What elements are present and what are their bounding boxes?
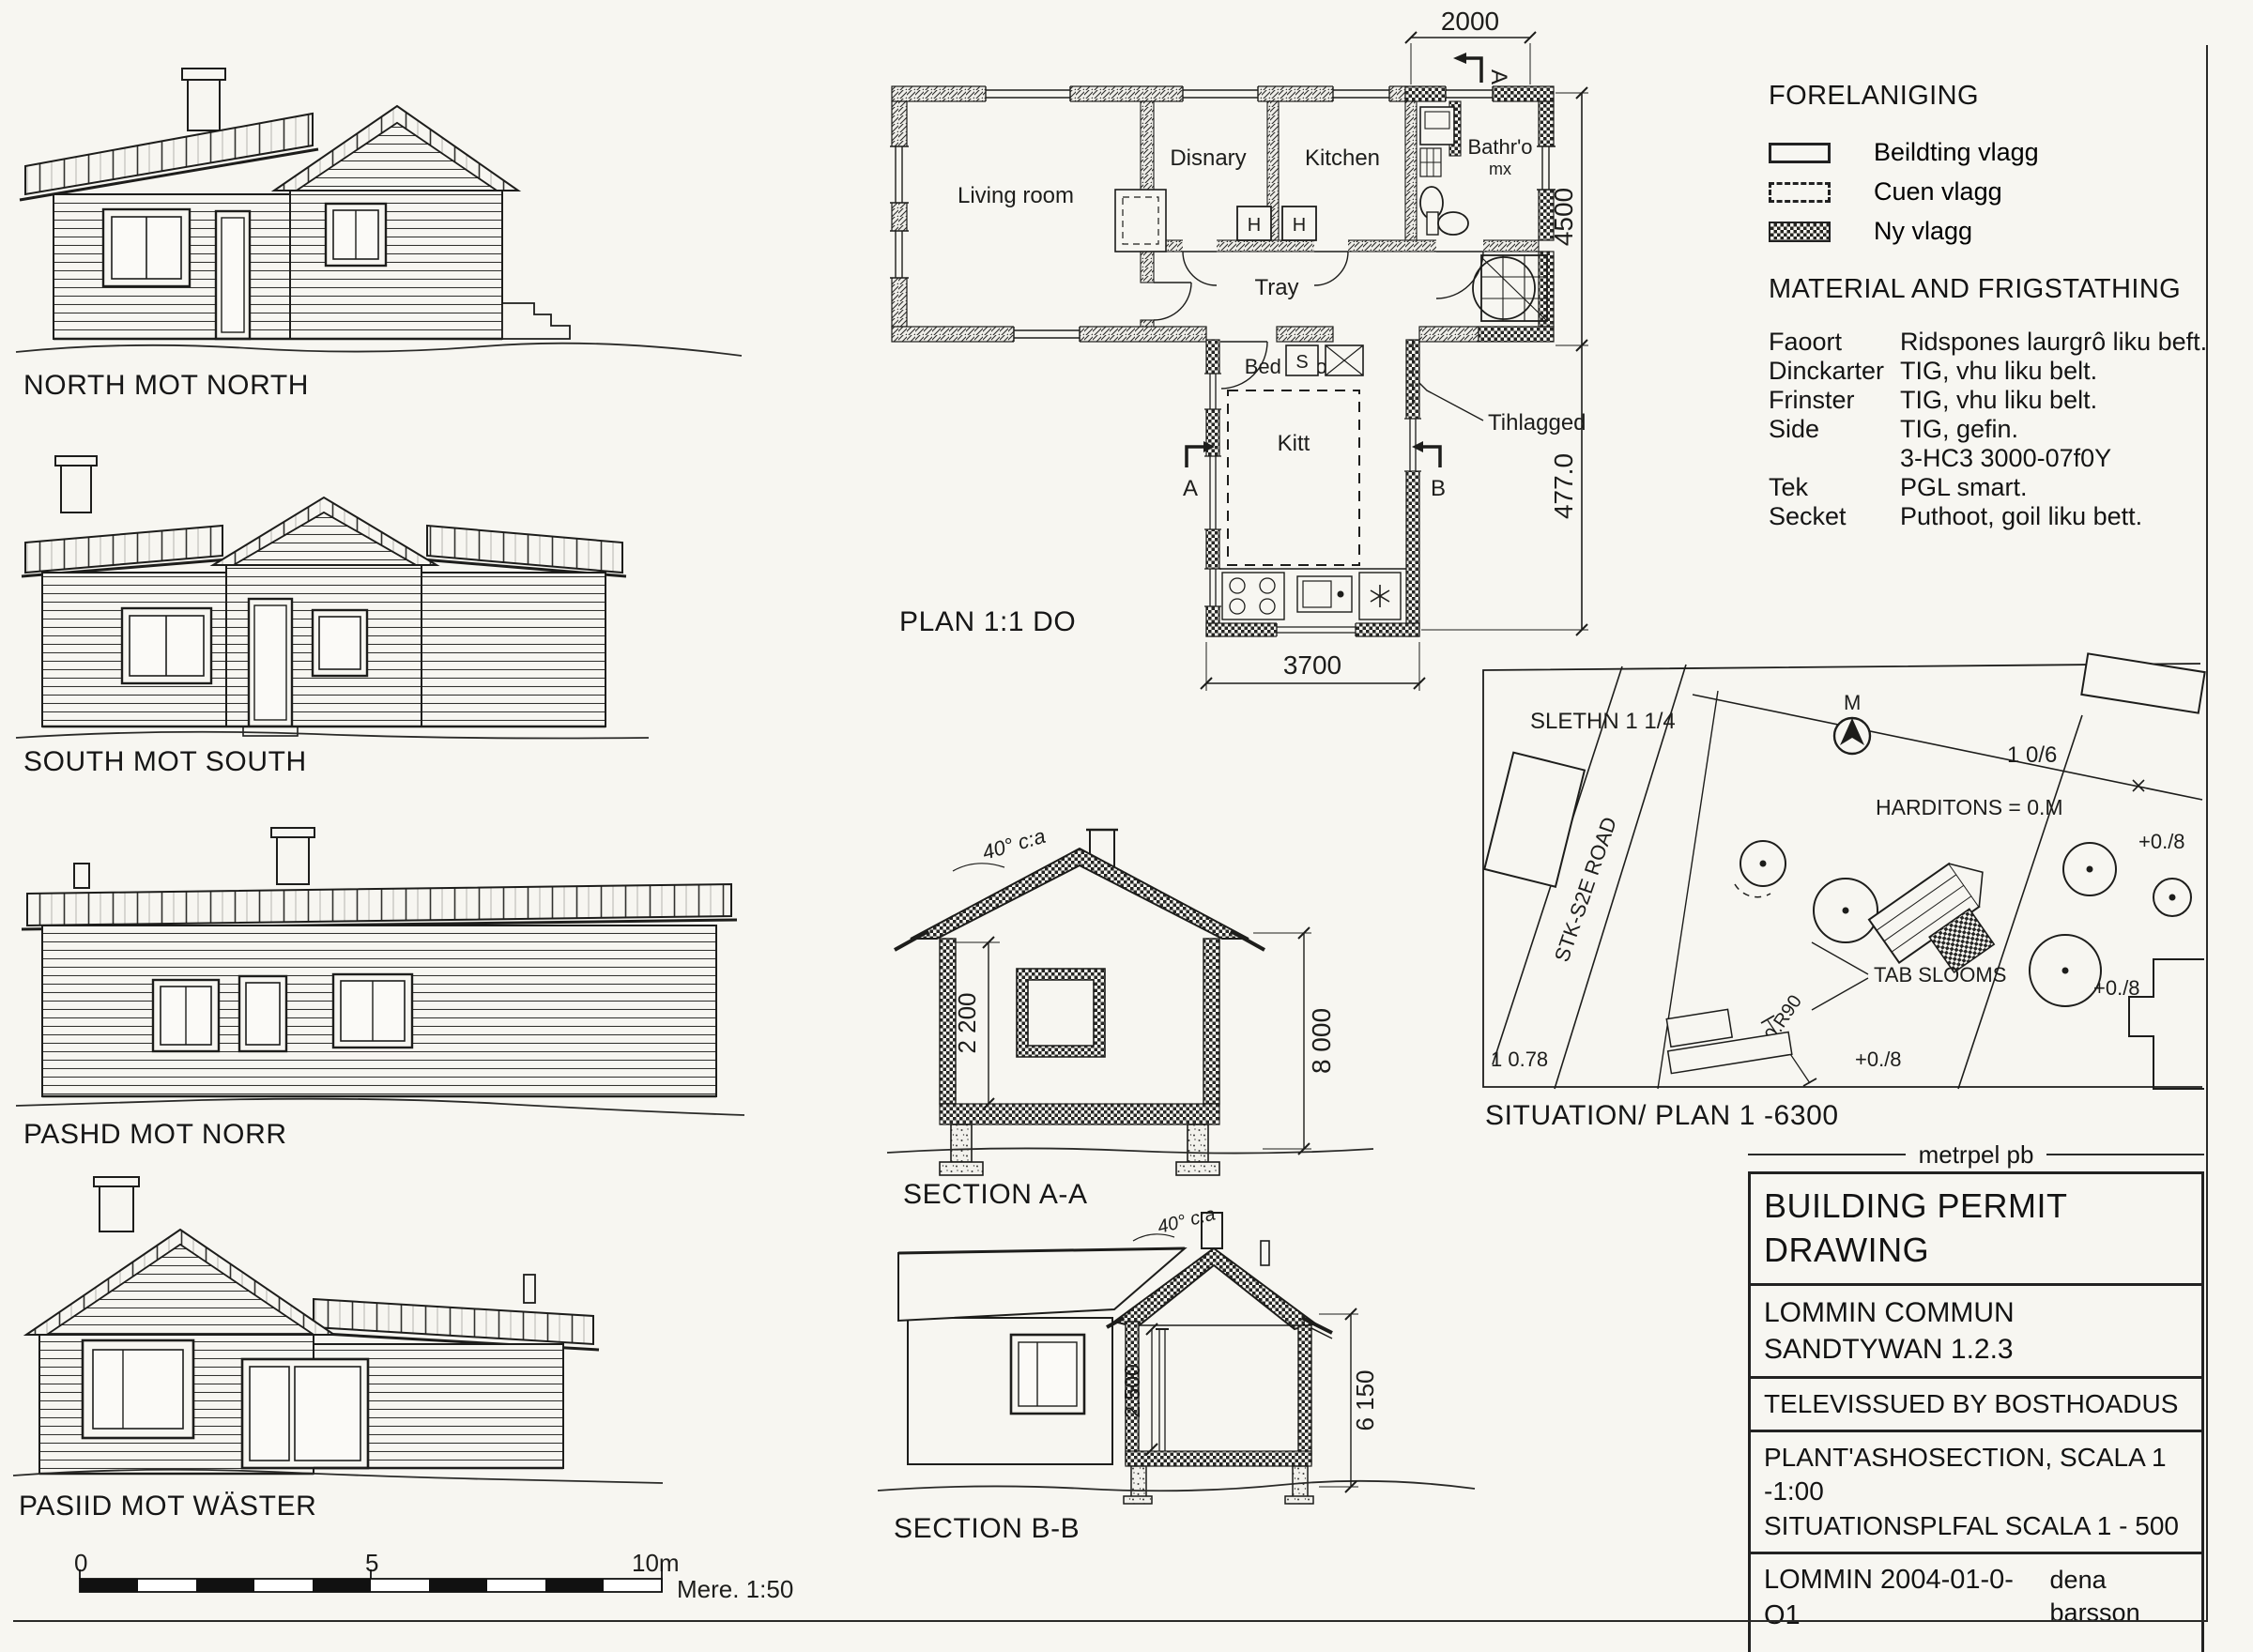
scale-zero: 0 xyxy=(74,1549,87,1577)
harditons-label: HARDITONS = 0.M xyxy=(1876,795,2063,819)
wall-section xyxy=(1203,939,1219,1104)
steps xyxy=(502,303,570,339)
dim-wall-value: 2 200 xyxy=(953,992,981,1053)
room-label-dining: Disnary xyxy=(1170,145,1246,171)
firm-name: metrpel pb xyxy=(1919,1140,2034,1170)
furniture xyxy=(1115,190,1166,252)
room-label-kitchen: Kitchen xyxy=(1305,145,1380,171)
section-aa-drawing: 2 200 8 000 40° c:a xyxy=(887,828,1375,1177)
room-label-kitt: Kitt xyxy=(1278,431,1310,456)
ground-line xyxy=(16,344,742,356)
section-bb-drawing: 2.500 6 150 40° c:a xyxy=(878,1213,1479,1504)
signature-row: LOMMIN 2004-01-0-O1 dena barsson Lena La… xyxy=(1751,1554,2201,1652)
dim-right-lower-value: 477.0 xyxy=(1549,453,1578,519)
window xyxy=(313,610,367,676)
elevation-south-drawing xyxy=(14,451,652,746)
step xyxy=(243,727,298,736)
materials: MATERIAL AND FRIGSTATHING FaoortRidspone… xyxy=(1769,274,2207,531)
floor-slab xyxy=(1126,1451,1311,1466)
material-row: DinckarterTIG, vhu liku belt. xyxy=(1769,357,2207,386)
window xyxy=(239,976,286,1051)
legend: FORELANIGING Beildting vlagg Cuen vlagg … xyxy=(1769,81,2039,256)
roof-wing xyxy=(314,1299,593,1344)
elevation-label-west: PASIID MOT WÄSTER xyxy=(19,1491,316,1522)
dim-total-height: 8 000 xyxy=(1253,927,1336,1155)
dim-top-value: 2000 xyxy=(1441,7,1499,36)
svg-text:H: H xyxy=(1293,215,1306,236)
title-block-box: BUILDING PERMIT DRAWING LOMMIN COMMUN SA… xyxy=(1748,1171,2204,1652)
section-marker-a-top: A xyxy=(1453,53,1511,84)
elevation-west-drawing xyxy=(9,1173,667,1483)
window xyxy=(326,204,386,266)
dim-wall-height: 2 200 xyxy=(953,937,1000,1109)
chimney xyxy=(182,69,225,130)
foundation-piers xyxy=(940,1124,1219,1175)
elevation-label-east: PASHD MOT NORR xyxy=(23,1119,287,1151)
scale-note: Mere. 1:50 xyxy=(677,1575,793,1603)
roof xyxy=(27,884,731,925)
elevation-label-north: NORTH MOT NORTH xyxy=(23,370,309,402)
ground-line xyxy=(16,1099,744,1115)
vent xyxy=(74,864,89,888)
materials-title: MATERIAL AND FRIGSTATHING xyxy=(1769,274,2207,305)
roof-left xyxy=(25,114,313,194)
legend-swatch-dashed-wall xyxy=(1769,182,1831,203)
porch-stair xyxy=(1473,255,1547,321)
firm-name-row: metrpel pb xyxy=(1748,1138,2204,1171)
window xyxy=(153,980,219,1051)
floor-slab xyxy=(940,1104,1219,1124)
elevation-east-drawing xyxy=(14,824,746,1123)
document-number: LOMMIN 2004-01-0-O1 xyxy=(1764,1563,2022,1633)
vent xyxy=(524,1275,535,1303)
legend-label: Cuen vlagg xyxy=(1874,177,2002,206)
scale-row: PLANT'ASHOSECTION, SCALA 1 -1:00 SITUATI… xyxy=(1751,1432,2201,1554)
section-aa-caption: SECTION A-A xyxy=(903,1179,1088,1211)
svg-text:B: B xyxy=(1431,476,1446,501)
legend-label: Ny vlagg xyxy=(1874,217,1972,246)
section-bb-caption: SECTION B-B xyxy=(894,1513,1080,1545)
neighbor-building xyxy=(2081,653,2204,712)
roof-right xyxy=(427,526,622,573)
scale-ten: 10m xyxy=(632,1549,680,1577)
siteplan-caption: SITUATION/ PLAN 1 -6300 xyxy=(1485,1100,1839,1132)
rule-line xyxy=(1748,1154,1906,1155)
vent xyxy=(1261,1241,1269,1265)
svg-text:A: A xyxy=(1183,476,1198,501)
door xyxy=(249,599,292,727)
floor-plan-drawing: 2000 A xyxy=(873,6,1699,700)
door xyxy=(216,211,250,339)
chimney xyxy=(271,828,314,884)
svg-text:TAB SLOOMS: TAB SLOOMS xyxy=(1874,963,2006,987)
elevation-label-south: SOUTH MOT SOUTH xyxy=(23,746,307,778)
north-label: M xyxy=(1844,691,1861,714)
window xyxy=(103,209,190,286)
dim-top: 2000 xyxy=(1405,7,1536,84)
legend-label: Beildting vlagg xyxy=(1874,138,2039,167)
neighbor-building xyxy=(1484,753,1585,887)
material-row: FaoortRidspones laurgrô liku beft. xyxy=(1769,328,2207,357)
drawing-sheet: NORTH MOT NORTH SOUTH MOT SOUTH xyxy=(0,0,2253,1652)
roof-section xyxy=(911,849,1249,939)
scale-line2: SITUATIONSPLFAL SCALA 1 - 500 xyxy=(1764,1509,2188,1543)
window xyxy=(122,608,211,683)
window xyxy=(242,1359,368,1468)
ground-line xyxy=(16,732,649,739)
dim-right-upper-value: 4500 xyxy=(1549,188,1578,246)
roof-left xyxy=(25,526,222,573)
roof-pitch-note: 40° c:a xyxy=(953,824,1048,871)
window-section xyxy=(1017,969,1105,1057)
neighbor-building xyxy=(2129,959,2204,1089)
dim-wall-value: 2.500 xyxy=(1120,1364,1144,1418)
commune-line2: SANDTYWAN 1.2.3 xyxy=(1764,1331,2188,1368)
plot-label-lower: 1 0.78 xyxy=(1491,1048,1548,1071)
tihlagged-note: Tihlagged xyxy=(1419,383,1586,436)
s-box-label: S xyxy=(1295,352,1308,373)
rule-line xyxy=(2046,1154,2204,1155)
level-value: +0./8 xyxy=(2138,830,2185,853)
dim-total-value: 8 000 xyxy=(1307,1008,1336,1074)
window xyxy=(83,1340,193,1438)
material-row: SecketPuthoot, goil liku bett. xyxy=(1769,502,2207,531)
driveway xyxy=(1663,1001,1791,1074)
kitt-dashed-outline xyxy=(1228,390,1359,565)
material-row: 3-HC3 3000-07f0Y xyxy=(1769,444,2207,473)
legend-item-new: Ny vlagg xyxy=(1769,217,2039,246)
legend-title: FORELANIGING xyxy=(1769,81,2039,112)
sheet-edge-right xyxy=(2206,45,2208,1620)
chimney xyxy=(94,1177,139,1231)
svg-text:40° c:a: 40° c:a xyxy=(979,824,1048,864)
ground-line xyxy=(878,1481,1475,1491)
situation-plan-drawing: STK-S2E ROAD SLETHN 1 1/4 1 0.78 M 1 0/6… xyxy=(1481,659,2206,1093)
level-value: +0./8 xyxy=(1855,1048,1902,1071)
window xyxy=(333,974,412,1048)
material-row: FrinsterTIG, vhu liku belt. xyxy=(1769,386,2207,415)
title-block: metrpel pb BUILDING PERMIT DRAWING LOMMI… xyxy=(1748,1138,2204,1652)
elevation-north-drawing xyxy=(14,52,746,361)
signature-name: Lena Larsson xyxy=(1764,1647,2188,1652)
material-row: TekPGL smart. xyxy=(1769,473,2207,502)
svg-text:Tihlagged: Tihlagged xyxy=(1488,410,1586,436)
reviewed-row: TELEVISSUED BY BOSTHOADUS xyxy=(1751,1379,2201,1432)
scale-five: 5 xyxy=(365,1549,378,1577)
room-label-bath: Bathr'o xyxy=(1467,135,1532,159)
room-label-bath2: mx xyxy=(1489,160,1511,178)
svg-text:A: A xyxy=(1486,69,1511,84)
svg-text:H: H xyxy=(1248,215,1261,236)
legend-item-cuen: Cuen vlagg xyxy=(1769,177,2039,206)
dim-bottom-value: 3700 xyxy=(1283,650,1341,680)
commune-row: LOMMIN COMMUN SANDTYWAN 1.2.3 xyxy=(1751,1286,2201,1379)
window xyxy=(1011,1335,1084,1414)
legend-swatch-new-wall xyxy=(1769,222,1831,242)
plot-label-upper: 1 0/6 xyxy=(2007,742,2057,768)
legend-swatch-existing-wall xyxy=(1769,143,1831,163)
kitchen-fixtures xyxy=(1219,569,1406,619)
scale-line1: PLANT'ASHOSECTION, SCALA 1 -1:00 xyxy=(1764,1441,2188,1509)
drawing-title: BUILDING PERMIT DRAWING xyxy=(1751,1174,2201,1286)
chimney xyxy=(55,456,97,512)
commune-line1: LOMMIN COMMUN xyxy=(1764,1294,2188,1331)
scale-bar: 0 5 10m Mere. 1:50 xyxy=(42,1549,812,1619)
plan-caption: PLAN 1:1 DO xyxy=(899,606,1076,638)
legend-item-existing: Beildting vlagg xyxy=(1769,138,2039,167)
dim-bottom: 3700 xyxy=(1201,642,1425,691)
dim-total-value: 6 150 xyxy=(1351,1369,1379,1430)
wall-section xyxy=(1298,1325,1311,1464)
room-label-hall: Tray xyxy=(1254,275,1298,300)
material-row: SideTIG, gefin. xyxy=(1769,415,2207,444)
sheet-edge-bottom xyxy=(13,1620,2208,1622)
room-label-living: Living room xyxy=(958,183,1074,208)
interior-door xyxy=(1156,1329,1169,1457)
plot-label-left: SLETHN 1 1/4 xyxy=(1530,709,1676,734)
north-arrow-icon: M xyxy=(1834,691,1870,754)
